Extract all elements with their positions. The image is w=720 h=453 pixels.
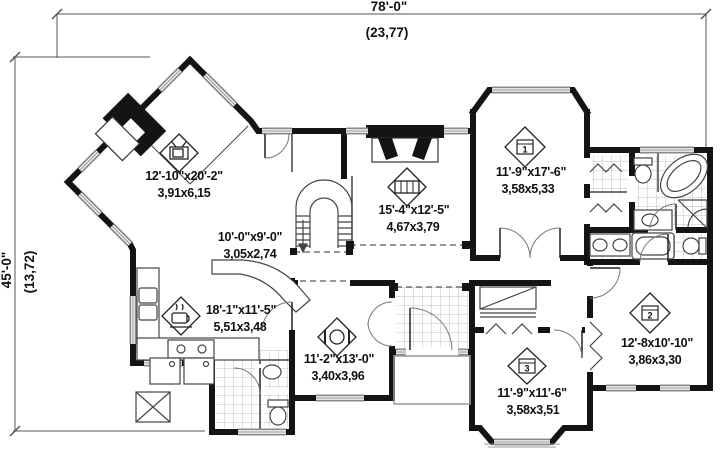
bedroom2-size: 12'-8x10'-10" (621, 336, 693, 350)
bedroom3-size-metric: 3,58x3,51 (507, 403, 560, 417)
nook-size: 10'-0"x9'-0" (218, 230, 283, 244)
dining-size-metric: 3,40x3,96 (312, 369, 365, 383)
bedroom-2-icon: 2 (630, 293, 670, 333)
dining-size: 11'-2"x13'-0" (304, 352, 375, 366)
family-fireplace (91, 93, 166, 168)
living-fireplace (366, 125, 444, 162)
width-imperial-label: 78'-0" (371, 0, 408, 14)
depth-metric-label: (13,72) (22, 251, 37, 294)
tv-icon (160, 134, 198, 172)
master-size: 11'-9"x17'-6" (496, 165, 567, 179)
bedroom-1-icon: 1 (505, 127, 545, 167)
depth-imperial-label: 45'-0" (0, 252, 14, 289)
width-metric-label: (23,77) (366, 25, 409, 40)
svg-text:1: 1 (522, 145, 527, 155)
bedroom2-size-metric: 3,86x3,30 (629, 353, 682, 367)
staircase (296, 180, 352, 252)
master-size-metric: 3,58x5,33 (502, 182, 555, 196)
floor-plan-svg: 1 2 3 78'-0" (23,77) 45'-0" (13,72) 12'-… (0, 0, 720, 448)
kitchen-size: 18'-1"x11'-5" (206, 303, 277, 317)
bedroom3-size: 11'-9"x11'-6" (497, 386, 567, 400)
bedroom-3-icon: 3 (508, 348, 546, 384)
family-room-size-metric: 3,91x6,15 (158, 186, 211, 200)
svg-text:2: 2 (647, 311, 652, 321)
svg-text:3: 3 (524, 364, 529, 374)
nook-size-metric: 3,05x2,74 (224, 247, 277, 261)
coffee-icon (162, 297, 200, 335)
living-size: 15'-4"x12'-5" (379, 203, 450, 217)
floor-plan: 1 2 3 78'-0" (23,77) 45'-0" (13,72) 12'-… (0, 0, 720, 448)
kitchen-size-metric: 5,51x3,48 (214, 320, 267, 334)
sofa-icon (388, 168, 426, 206)
family-room-size: 12'-10"x20'-2" (145, 169, 223, 183)
dining-table-icon (318, 318, 356, 356)
living-size-metric: 4,67x3,79 (387, 220, 440, 234)
